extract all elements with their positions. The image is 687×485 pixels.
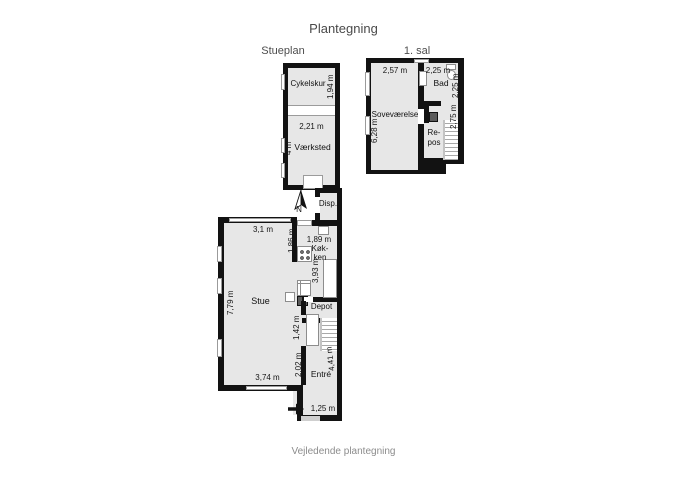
window	[281, 163, 285, 178]
north-label: N	[293, 205, 305, 215]
dim-stue-depth: 7,79 m	[226, 287, 236, 319]
room-label-repos-1: Re-	[423, 128, 445, 138]
dim-koekken-width: 1,89 m	[303, 235, 335, 244]
window	[229, 218, 291, 222]
dim-koekken-depth: 3,93 m	[311, 257, 321, 285]
dim-vaerksted-width: 2,21 m	[288, 122, 335, 131]
room-label-disp: Disp.	[317, 199, 339, 209]
notch	[446, 164, 464, 174]
window	[297, 220, 312, 226]
divider-cykelskur-vaerksted	[288, 105, 335, 116]
room-label-vaerksted: Værksted	[289, 143, 336, 153]
dim-repos-depth: 2,75 m	[449, 101, 459, 132]
room-label-repos-2: pos	[423, 138, 445, 148]
footer-note: Vejledende plantegning	[0, 446, 687, 457]
dim-hall-length: 2,02 m	[294, 351, 304, 379]
floor-label-stueplan: Stueplan	[238, 45, 328, 57]
floor-label-first-floor: 1. sal	[384, 45, 450, 57]
dim-cykelskur-depth: 1,94 m	[326, 70, 336, 103]
kitchen-counter	[323, 259, 337, 298]
dim-entre-door: 1,25 m	[308, 404, 338, 413]
room-label-cykelskur: Cykelskur	[286, 79, 330, 89]
water-heater-icon	[318, 226, 329, 235]
dim-stue-width-bottom: 3,74 m	[245, 373, 290, 382]
door-leaf	[306, 314, 319, 346]
wall-stue-left	[218, 217, 224, 391]
sink-icon	[297, 280, 311, 296]
dim-hall-stair: 1,42 m	[292, 314, 302, 341]
window	[414, 59, 429, 63]
window	[217, 278, 222, 294]
window	[281, 74, 285, 90]
window	[246, 386, 287, 390]
page-title: Plantegning	[0, 21, 687, 36]
window	[217, 246, 222, 262]
dim-koekken-wall: 1,86 m	[287, 227, 297, 254]
room-label-depot: Depot	[305, 302, 338, 312]
floorplan-page: Plantegning Stueplan 1. sal	[0, 0, 687, 485]
dim-vaerksted-depth: 4 m	[284, 136, 294, 160]
chimney	[429, 112, 438, 122]
sink-grid	[298, 281, 310, 295]
room-label-bad: Bad	[430, 79, 452, 89]
dim-sovevaerelse-width: 2,57 m	[376, 66, 414, 75]
window	[303, 175, 323, 189]
entrance-arrow-icon	[288, 402, 304, 414]
dim-stue-width-top: 3,1 m	[238, 225, 288, 234]
room-label-stue: Stue	[238, 297, 283, 307]
entrance-door	[301, 416, 320, 421]
window	[365, 72, 370, 96]
fireplace-icon	[285, 292, 295, 302]
dim-bad-depth: 2,25 m	[451, 71, 461, 100]
window	[217, 339, 222, 357]
dim-sovevaerelse-depth: 6,28 m	[370, 116, 380, 146]
